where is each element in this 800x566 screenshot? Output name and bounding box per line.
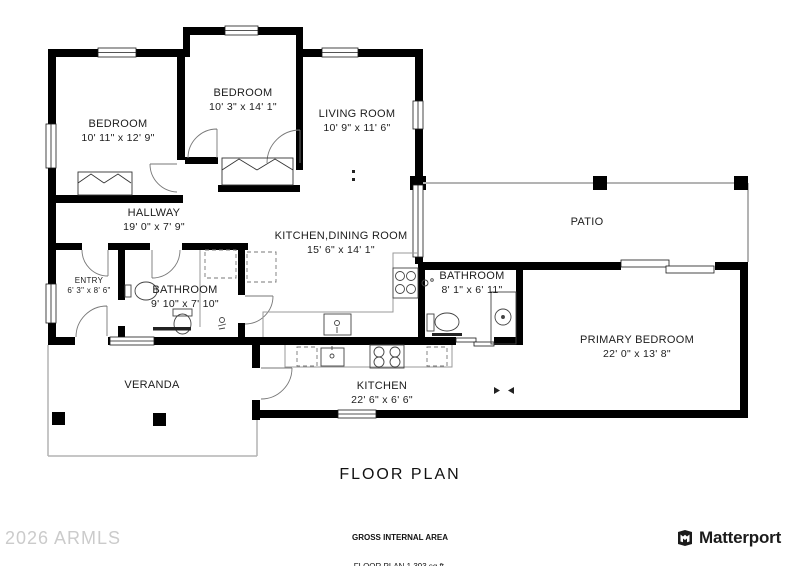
room-dims: 19' 0" x 7' 9" [92,220,216,234]
room-name: PATIO [527,215,647,229]
room-label-veranda: VERANDA [92,378,212,392]
room-name: BEDROOM [56,117,180,131]
room-name: KITCHEN [320,379,444,393]
room-dims: 8' 1" x 6' 11" [410,283,534,297]
room-name: BATHROOM [123,283,247,297]
closet-icon [222,158,293,185]
room-name: HALLWAY [92,206,216,220]
matterport-logo: Matterport [676,528,781,548]
room-dims: 22' 0" x 13' 8" [542,347,732,361]
matterport-logo-text: Matterport [699,528,781,548]
room-label-living-room: LIVING ROOM 10' 9" x 11' 6" [295,107,419,135]
room-name: BEDROOM [181,86,305,100]
room-label-bedroom-2: BEDROOM 10' 3" x 14' 1" [181,86,305,114]
veranda-outline [48,345,257,456]
shower-icon [205,250,236,278]
page-title: FLOOR PLAN [0,466,800,484]
room-label-kitchen-dining: KITCHEN,DINING ROOM 15' 6" x 14' 1" [246,229,436,257]
room-name: PRIMARY BEDROOM [542,333,732,347]
summary-floorplan: FLOOR PLAN 1,393 sq.ft. [0,562,800,566]
room-label-bathroom-1: BATHROOM 9' 10" x 7' 10" [123,283,247,311]
room-dims: 22' 6" x 6' 6" [320,393,444,407]
room-label-kitchen: KITCHEN 22' 6" x 6' 6" [320,379,444,407]
room-label-bathroom-2: BATHROOM 8' 1" x 6' 11" [410,269,534,297]
room-label-patio: PATIO [527,215,647,229]
sink-icon [324,314,351,335]
room-label-primary-bedroom: PRIMARY BEDROOM 22' 0" x 13' 8" [542,333,732,361]
room-dims: 10' 11" x 12' 9" [56,131,180,145]
room-name: LIVING ROOM [295,107,419,121]
room-name: BATHROOM [410,269,534,283]
armls-watermark: 2026 ARMLS [5,528,121,549]
doors [76,129,300,399]
room-name: ENTRY [54,276,124,286]
floor-plan-page: BEDROOM 10' 11" x 12' 9" BEDROOM 10' 3" … [0,0,800,566]
room-dims: 10' 9" x 11' 6" [295,121,419,135]
sink-icon [321,348,344,366]
room-dims: 15' 6" x 14' 1" [246,243,436,257]
room-name: VERANDA [92,378,212,392]
room-label-bedroom-1: BEDROOM 10' 11" x 12' 9" [56,117,180,145]
matterport-logo-icon [676,529,694,547]
room-name: KITCHEN,DINING ROOM [246,229,436,243]
room-label-entry: ENTRY 6' 3" x 8' 6" [54,276,124,296]
toilet-icon [427,314,434,331]
room-dims: 6' 3" x 8' 6" [54,286,124,296]
closet-icon [78,172,132,195]
room-dims: 10' 3" x 14' 1" [181,100,305,114]
room-dims: 9' 10" x 7' 10" [123,297,247,311]
room-label-hallway: HALLWAY 19' 0" x 7' 9" [92,206,216,234]
